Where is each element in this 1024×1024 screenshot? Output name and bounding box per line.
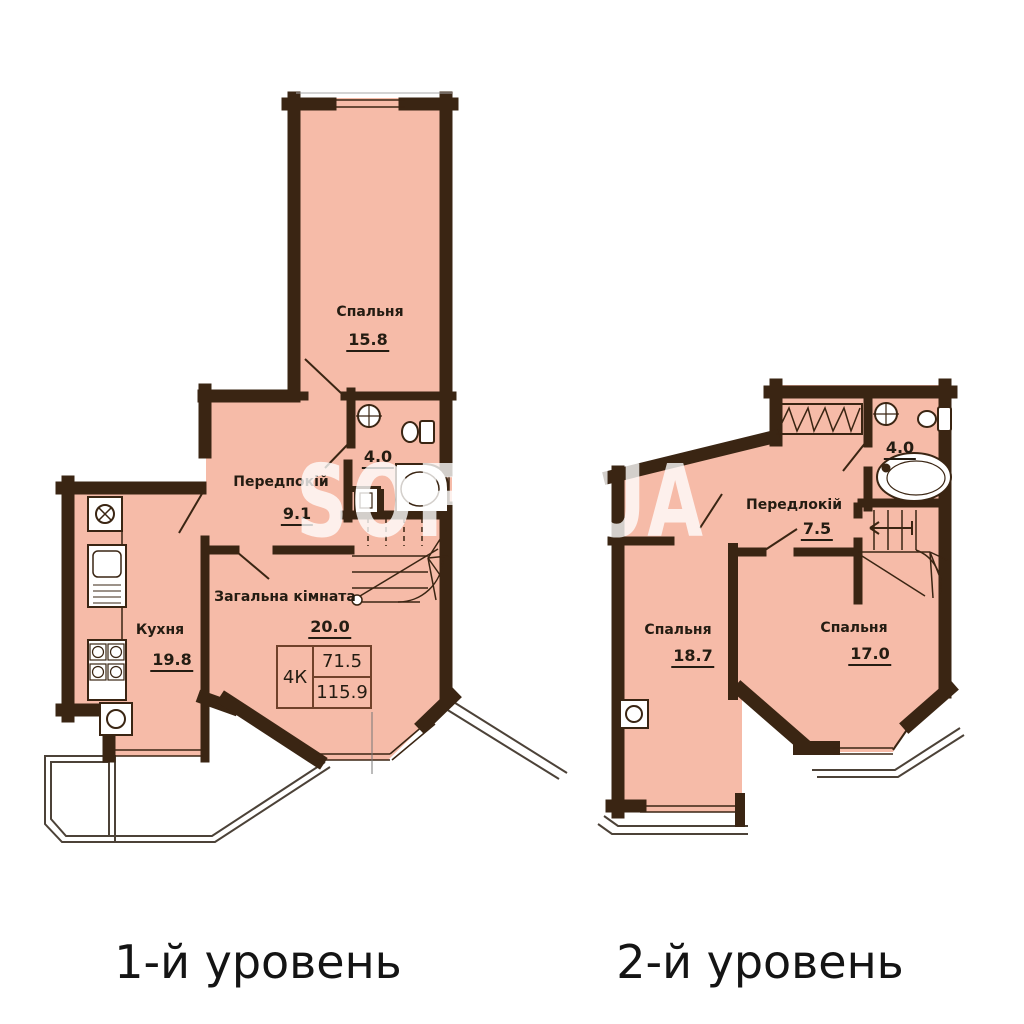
room-name-hallway-l1: Передпокій	[233, 474, 328, 490]
room-area-bedroom-l1: 15.8	[346, 330, 389, 352]
apartment-type: 4К	[278, 647, 314, 707]
washer-icon	[100, 703, 132, 735]
room-area-kitchen-l1: 19.8	[150, 650, 193, 672]
room-name-living-l1: Загальна кімната	[214, 589, 356, 605]
room-name-bedroom-left-l2: Спальня	[644, 622, 711, 638]
toilet-icon	[420, 421, 434, 443]
level1-caption: 1-й уровень	[114, 935, 402, 989]
bathtub-icon	[396, 464, 448, 512]
total-area-value: 115.9	[314, 678, 370, 707]
washer-icon	[620, 700, 648, 728]
room-area-bedroom-left-l2: 18.7	[671, 646, 714, 668]
room-area-bathroom-l2: 4.0	[884, 438, 916, 460]
room-name-hallway-l2: Передлокій	[746, 497, 842, 513]
toilet-icon	[938, 407, 951, 431]
level2-caption: 2-й уровень	[616, 935, 904, 989]
room-name-bedroom-right-l2: Спальня	[820, 620, 887, 636]
apartment-info-box: 4К 71.5 115.9	[276, 645, 372, 709]
boiler-icon	[355, 488, 378, 513]
level1-plan	[45, 93, 567, 842]
room-area-hallway-l2: 7.5	[801, 519, 833, 541]
room-area-living-l1: 20.0	[308, 617, 351, 639]
room-area-bedroom-right-l2: 17.0	[848, 644, 891, 666]
room-name-bedroom-l1: Спальня	[336, 304, 403, 320]
room-area-bathroom-l1: 4.0	[362, 447, 394, 469]
bathtub-icon	[877, 453, 951, 501]
room-name-kitchen-l1: Кухня	[136, 622, 184, 638]
room-area-hallway-l1: 9.1	[281, 504, 313, 526]
floorplan-drawing	[0, 0, 1024, 1024]
floorplan-image: Спальня 15.8 Передпокій 9.1 4.0 Кухня 19…	[0, 0, 1024, 1024]
living-area-value: 71.5	[314, 647, 370, 678]
